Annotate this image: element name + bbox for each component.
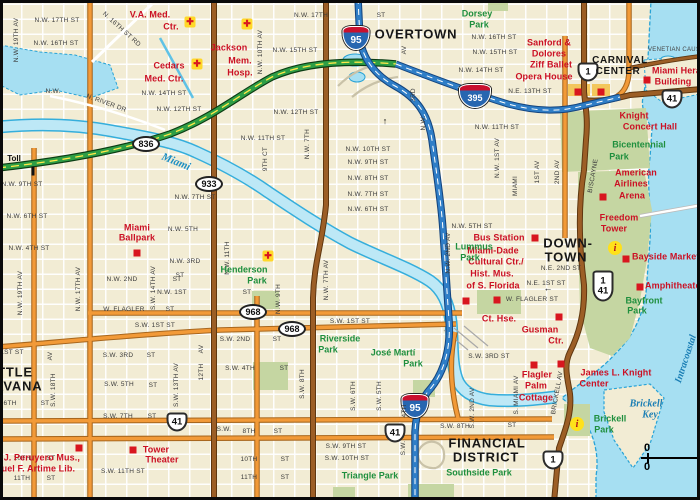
label-n-w-12th-st: N.W. 12TH ST [157,107,202,114]
label-amphitheater: Amphitheater [645,282,700,291]
sr933-shield: 933 [195,176,223,192]
label-henderson: Henderson [220,266,267,275]
label-freedom: Freedom [600,214,639,223]
label-miami: MIAMI [513,176,520,196]
label-mem: Mem. [228,57,251,66]
label-s-w-4th: S.W. 4TH [225,366,255,373]
poi-square-icon [556,314,563,321]
label-s-w-10th-st: S.W. 10TH ST [325,456,370,463]
label-2nd-av: 2ND AV [555,160,562,184]
label-park: Park [460,254,480,263]
hospital-cross-icon: ✚ [185,17,196,28]
label-6th: 6TH [3,401,16,408]
map-overlay: N.W. 17TH STN.W. 16TH STN. 16TH ST RDN.W… [0,0,700,500]
label-miami: Miami [124,224,150,233]
label-n-w-2nd-av: N.W. 2ND AV [446,232,453,273]
label-s-w-3rd: S.W. 3RD [103,353,134,360]
label-biscayne: BISCAYNE [588,159,600,194]
label-intracoastal: Intracoastal [673,334,699,385]
hospital-cross-icon: ✚ [263,251,274,262]
label-nuel-f-artime-lib: nuel F. Artime Lib. [0,465,75,474]
poi-square-icon [637,284,644,291]
label-n-w-9th-st: N.W. 9TH ST [1,182,42,189]
label-av: AV [48,352,55,361]
label-arena: Arena [619,192,645,201]
label-11th: 11TH [14,476,30,483]
label-bayfront: Bayfront [625,297,662,306]
label-9th-ct: 9TH CT [263,147,270,171]
label-av: AV [199,345,206,354]
miami-street-map: N.W. 17TH STN.W. 16TH STN. 16TH ST RDN.W… [0,0,700,500]
label-hosp: Hosp. [227,69,253,78]
label-building: Building [655,78,692,87]
label-st: ST [166,307,175,314]
label-park: Park [318,346,338,355]
us1-us41-shield-downtown: 141 [593,271,614,302]
label-st: ST [41,401,50,408]
poi-square-icon [644,77,651,84]
label-n-w-14th-st: N.W. 14TH ST [459,68,504,75]
label-s-w: S.W. [401,441,408,456]
label-james-l-knight: James L. Knight [580,369,651,378]
label-v-a-med: V.A. Med. [130,11,171,20]
label-st: ST [508,423,517,430]
label-sanford: Sanford & [527,39,571,48]
label-n-w-10th-av: N.W. 10TH AV [258,30,265,74]
label-n-w-8th-st: N.W. 8TH ST [347,176,388,183]
label-n-w-12th-st: N.W. 12TH ST [274,110,319,117]
label-st: ST [147,353,156,360]
label-tower: Tower [601,225,627,234]
label-park: Park [594,426,614,435]
label-knight: Knight [619,112,648,121]
scale-bar [641,457,700,459]
label-miami: Miami [160,151,192,173]
label-n-w-17th-st: N.W. 17TH ST [35,18,80,25]
map-scale: 0 0 [641,443,700,473]
poi-square-icon [130,447,137,454]
sr968-shield-flagler: 968 [239,304,267,320]
poi-square-icon [531,362,538,369]
i395-shield: 395 [459,84,491,108]
label-park: Park [403,360,423,369]
label-district: DISTRICT [453,451,519,464]
label-riverside: Riverside [320,335,361,344]
label-s-w-7th: S.W. 7TH [103,414,133,421]
label-n-w-15th-st: N.W. 15TH ST [473,50,518,57]
label-s-w-5th: S.W. 5TH [104,382,134,389]
label-overtown: OVERTOWN [375,28,458,41]
label-s-w-1st-st: S.W. 1ST ST [135,323,175,330]
label-n-w-1st: N.W. 1ST [157,290,187,297]
label-st: ST [273,337,282,344]
label-s-w-18th: S.W. 18TH [51,373,58,407]
label-n-w-16th-st: N.W. 16TH ST [34,41,79,48]
label-st: ST [377,13,386,20]
label-town: TOWN [545,251,588,264]
label-ctr: Ctr. [163,23,178,32]
label-s-w-8th: S.W. 8TH [440,424,470,431]
label-ziff-ballet: Ziff Ballet [530,61,572,70]
label-n-w-17th: N.W. 17TH [294,13,328,20]
label-little: LITTLE [0,366,33,379]
label-park: Park [627,307,647,316]
label-n-w-9th: N.W. 9TH [276,284,283,314]
poi-square-icon [76,445,83,452]
label-cottage: Cottage [519,394,553,403]
label-n-w-11th-st: N.W. 11TH ST [241,136,285,143]
label-southside-park: Southside Park [446,469,512,478]
label-n-w-19th-av: N.W. 19TH AV [14,18,21,62]
label-n-w-1st-av: N.W. 1ST AV [495,138,502,178]
poi-square-icon [558,361,565,368]
poi-square-icon [575,89,582,96]
label-airlines: Airlines [614,180,648,189]
label-st: ST [274,429,283,436]
label-n-w-7th: N.W. 7TH [305,129,312,159]
label-n-e-2nd-st: N.E. 2ND ST [541,266,581,273]
label-concert-hall: Concert Hall [623,123,677,132]
label-opera-house: Opera House [515,73,572,82]
label-n-w-7th-st: N.W. 7TH ST [174,195,215,202]
label-n-w-9th-st: N.W. 9TH ST [347,160,388,167]
label-s-w-3rd-st: S.W. 3RD ST [468,354,509,361]
poi-square-icon [494,297,501,304]
label-st: ST [149,383,158,390]
label-st: ST [281,475,290,482]
poi-square-icon [600,194,607,201]
label-american: American [615,169,657,178]
label-n-river-dr: N. RIVER DR [85,94,127,115]
poi-square-icon [623,256,630,263]
label-n-w-16th-st: N.W. 16TH ST [472,35,517,42]
label-n-w-6th-st: N.W. 6TH ST [347,207,388,214]
label-11th: 11TH [241,475,257,482]
label-label: ↑ [383,116,388,126]
label-1st-st: 1ST ST [0,350,23,357]
label-1st-av: 1ST AV [535,161,542,184]
label-n-w-17th-av: N.W. 17TH AV [76,267,83,311]
label-n-w-14th-st: N.W. 14TH ST [142,91,187,98]
label-n-w-19th-av: N.W. 19TH AV [18,271,25,315]
us41-shield-sw7th: 41 [167,413,188,432]
hospital-cross-icon: ✚ [242,19,253,30]
label-flagler: Flagler [522,371,552,380]
label-s-w-9th-st: S.W. 9TH ST [326,444,367,451]
label-8th: 8TH [242,429,255,436]
label-palm: Palm [525,382,547,391]
poi-square-icon [598,89,605,96]
label-4th: 4TH [402,404,409,417]
label-brickell: Brickell [594,415,627,424]
label-av: AV [402,46,409,55]
label-carnival: CARNIVAL [592,56,648,66]
label-venetian-causeway: VENETIAN CAUSEWAY [648,47,700,53]
label-jackson: Jackson [211,44,248,53]
scale-bottom-value: 0 [644,462,700,473]
label-n-w-4th-st: N.W. 4TH ST [8,246,49,253]
label-key: Key [642,410,658,421]
label-n-w: N.W. [45,89,60,96]
label-st: ST [280,366,289,373]
label-financial: FINANCIAL [448,437,525,450]
label-12th: 12TH [199,364,206,381]
label-w-flagler: W. FLAGLER [103,307,145,314]
label-s-w-1st-st: S.W. 1ST ST [330,319,370,326]
label-n-w-15th-st: N.W. 15TH ST [273,48,318,55]
label-w-flagler-st: W. FLAGLER ST [506,297,558,304]
label-n-w-2nd: N.W. 2ND [107,277,138,284]
label-havana: HAVANA [0,380,42,393]
label-of-s-florida: of S. Florida [466,282,519,291]
label-dorsey: Dorsey [462,10,493,19]
label-st: ST [148,414,157,421]
label-jos-mart: José Martí [371,349,416,358]
toll-booth-icon [32,167,35,176]
label-st: ST [243,290,252,297]
label-hist-mus: Hist. Mus. [470,270,514,279]
us1-shield-brickell: 1 [543,451,564,470]
label-miami-herald: Miami Herald [652,67,700,76]
label-n-w-6th-st: N.W. 6TH ST [6,214,47,221]
poi-square-icon [134,250,141,257]
label-toll: Toll [7,155,21,163]
i95-shield-north: 95 [343,26,370,50]
label-triangle-park: Triangle Park [342,472,399,481]
label-down: DOWN- [543,237,593,250]
us41-shield-causeway: 41 [662,90,683,109]
label-s-w-13th-av: S.W. 13TH AV [174,363,181,407]
label-center: Center [579,380,608,389]
label-park: Park [469,21,489,30]
label-st: ST [173,277,182,284]
poi-square-icon [463,298,470,305]
label-n-w-5th-st: N.W. 5TH ST [451,224,492,231]
label-ballpark: Ballpark [119,234,155,243]
label-center: CENTER [596,67,641,77]
label-s-w-2nd: S.W. 2ND [220,337,251,344]
label-n-w-7th-av: N.W. 7TH AV [324,260,331,301]
scale-top-value: 0 [644,443,700,454]
label-cedars: Cedars [153,62,184,71]
label-gusman: Gusman [522,326,559,335]
label-n-e-13th-st: N.E. 13TH ST [508,89,551,96]
label-s-w-14th-av: S.W. 14TH AV [151,266,158,310]
label-n-w-11th-st: N.W. 11TH ST [475,125,519,132]
hospital-cross-icon: ✚ [192,59,203,70]
label-brickell-av: BRICKELL AV [551,371,565,415]
poi-square-icon [532,235,539,242]
label-a-j-peruyero-mus: a J. Peruyero Mus., [0,454,80,463]
label-10th: 10TH [241,457,258,464]
label-bicentennial: Bicentennial [612,141,666,150]
label-n-w-7th-st: N.W. 7TH ST [347,192,388,199]
label-s-w: S.W. [217,427,232,434]
label-park: Park [247,277,267,286]
label-s-w-11th-st: S.W. 11TH ST [101,469,145,476]
label-park: Park [609,153,629,162]
label-brickell: Brickell [630,399,663,410]
label-n-w-3rd: N.W. 3RD [170,259,201,266]
sr836-shield: 836 [132,136,160,152]
label-n-w-10th-st: N.W. 10TH ST [346,147,391,154]
label-n-w: N.W. [421,115,428,130]
label-s-w-5th: S.W. 5TH [377,381,384,411]
label-s-w-6th: S.W. 6TH [351,381,358,411]
label-n-w-5th: N.W. 5TH [168,227,198,234]
label-s-w-8th: S.W. 8TH [300,369,307,399]
label-st: ST [281,457,290,464]
label-theater: Theater [145,456,178,465]
information-icon: i [608,241,622,255]
label-bayside-marketplace: Bayside Marketplace [632,253,700,262]
label-label: ← [544,283,553,293]
label-med-ctr: Med. Ctr. [145,75,184,84]
label-tower: Tower [143,446,169,455]
sr968-shield-sw1st: 968 [278,321,306,337]
label-ct-hse: Ct. Hse. [482,315,516,324]
label-ctr: Ctr. [548,337,563,346]
information-icon: i [570,417,584,431]
label-lummus: Lummus [455,243,493,252]
label-st: ST [47,476,56,483]
label-dolores: Dolores [532,50,566,59]
label-s-w-2nd-av: S.W. 2ND AV [470,388,477,429]
label-3rd: 3RD [411,88,418,102]
